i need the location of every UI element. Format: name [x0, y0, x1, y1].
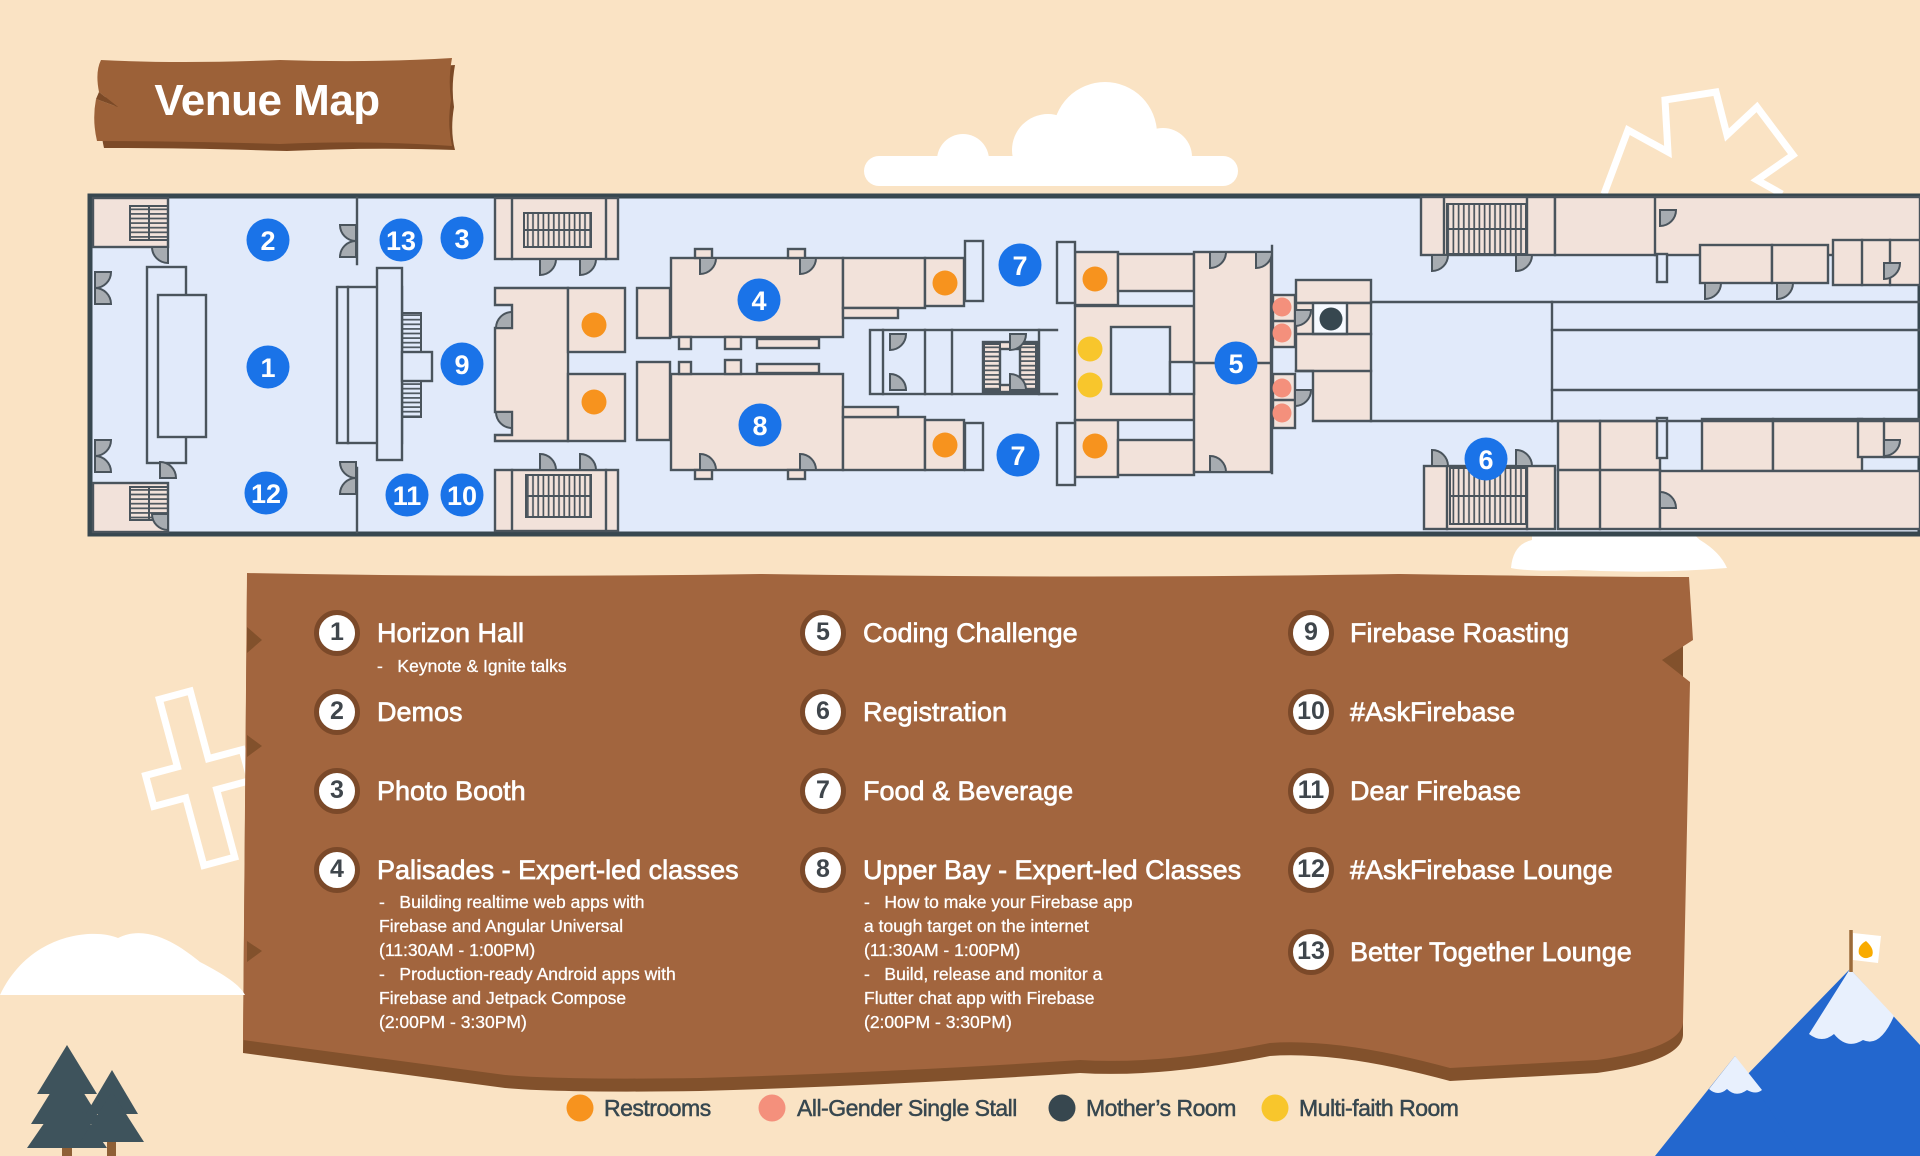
svg-text:7: 7	[1012, 251, 1027, 281]
svg-text:3: 3	[454, 224, 469, 254]
svg-text:10: 10	[447, 481, 477, 511]
svg-text:12: 12	[251, 479, 281, 509]
svg-text:6: 6	[1478, 445, 1493, 475]
svg-text:8: 8	[752, 411, 767, 441]
svg-text:5: 5	[1228, 349, 1243, 379]
svg-text:9: 9	[454, 350, 469, 380]
svg-text:2: 2	[260, 226, 275, 256]
svg-text:13: 13	[386, 226, 416, 256]
svg-text:11: 11	[393, 481, 422, 511]
svg-text:4: 4	[751, 286, 766, 316]
svg-text:7: 7	[1010, 441, 1025, 471]
svg-text:1: 1	[260, 353, 275, 383]
